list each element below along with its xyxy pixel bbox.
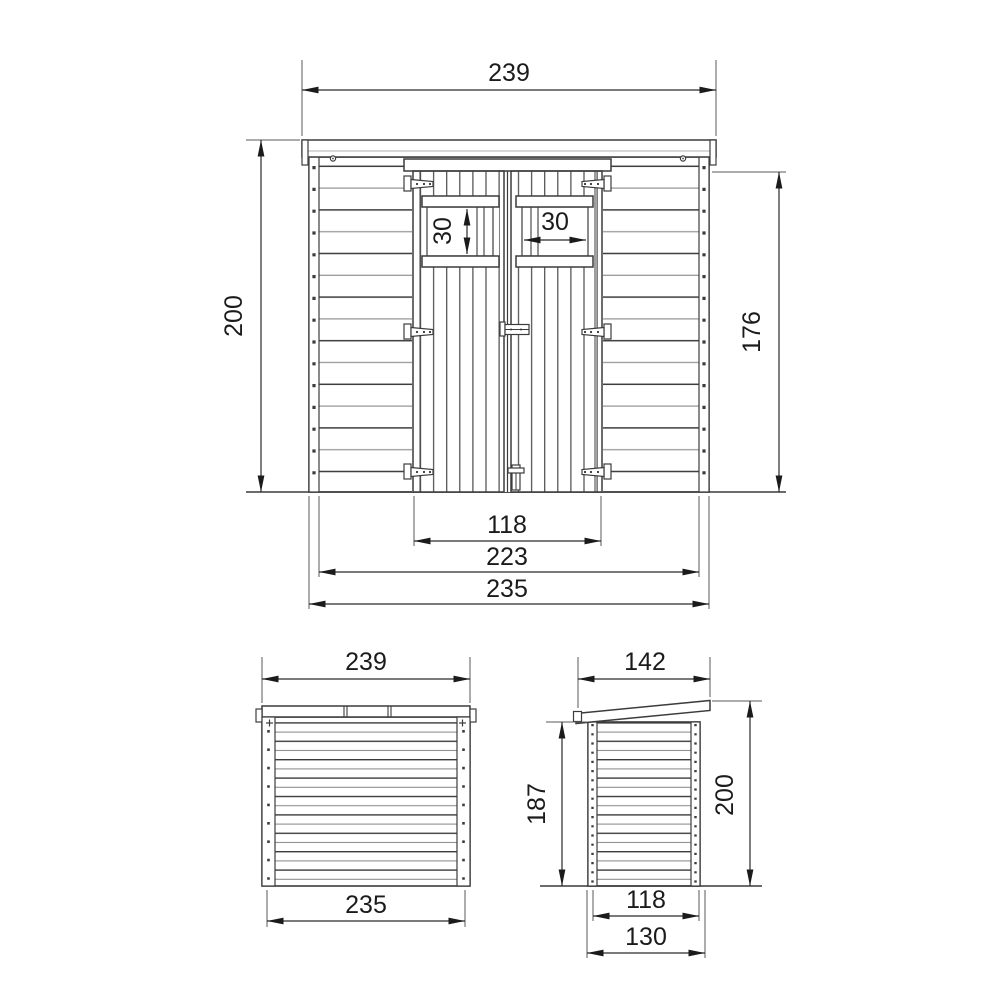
dim-front-total-height: 200 — [220, 140, 300, 492]
dim-label: 223 — [486, 543, 528, 571]
dim-label: 118 — [626, 886, 666, 914]
dim-label: 239 — [488, 59, 530, 87]
dim-side-roof-depth: 142 — [578, 648, 710, 708]
window-top-rail — [422, 196, 499, 207]
side-left-corner-trim — [588, 722, 597, 886]
fascia-right-cap — [470, 709, 476, 722]
fascia-right-cap — [710, 140, 716, 165]
dim-front-wall-height: 176 — [712, 172, 786, 492]
technical-drawing: 239 200 176 30 30 118 — [0, 0, 1000, 1000]
dim-label: 130 — [625, 923, 667, 951]
window-bottom-rail — [516, 256, 593, 267]
dim-label: 200 — [220, 295, 248, 337]
roof-right-edge-band — [457, 717, 470, 886]
dim-label: 235 — [486, 575, 528, 603]
dim-front-roof-width: 239 — [302, 59, 716, 136]
roof-left-edge-band — [262, 717, 275, 886]
window-top-rail — [516, 196, 593, 207]
roof-left-cap — [574, 712, 582, 722]
front-right-corner-trim — [699, 157, 709, 492]
roof-planks — [262, 717, 470, 886]
dim-label: 187 — [523, 783, 551, 825]
dim-label: 118 — [487, 511, 527, 539]
side-right-corner-trim — [691, 722, 700, 886]
side-wall-planks — [588, 722, 700, 886]
front-view: 239 200 176 30 30 118 — [220, 59, 786, 609]
side-view: 142 187 200 118 130 — [523, 648, 762, 958]
fascia-left-cap — [256, 709, 262, 722]
dim-side-total-height: 200 — [711, 701, 762, 886]
dim-door-opening: 118 — [414, 496, 601, 546]
top-view: 239 235 — [256, 648, 476, 927]
shed-technical-drawing: 239 200 176 30 30 118 — [0, 0, 1000, 1000]
dim-side-back-height: 187 — [523, 722, 586, 886]
dim-top-roof-width: 239 — [262, 648, 470, 703]
fascia-left-cap — [302, 140, 308, 165]
door-unit — [404, 159, 611, 492]
dim-top-wall-width: 235 — [267, 890, 465, 927]
dim-label: 200 — [711, 774, 739, 816]
dim-label: 142 — [624, 648, 666, 676]
dim-label: 176 — [738, 311, 766, 353]
side-sloped-roof — [574, 701, 711, 724]
front-left-corner-trim — [309, 157, 319, 492]
dim-label: 239 — [345, 648, 387, 676]
dim-label: 30 — [541, 208, 569, 236]
window-bottom-rail — [422, 256, 499, 267]
dim-side-floor-depth: 118 — [593, 886, 699, 921]
dim-label: 30 — [429, 217, 457, 245]
door-header-board — [404, 159, 611, 171]
dim-label: 235 — [345, 891, 387, 919]
door-latch — [500, 322, 529, 336]
